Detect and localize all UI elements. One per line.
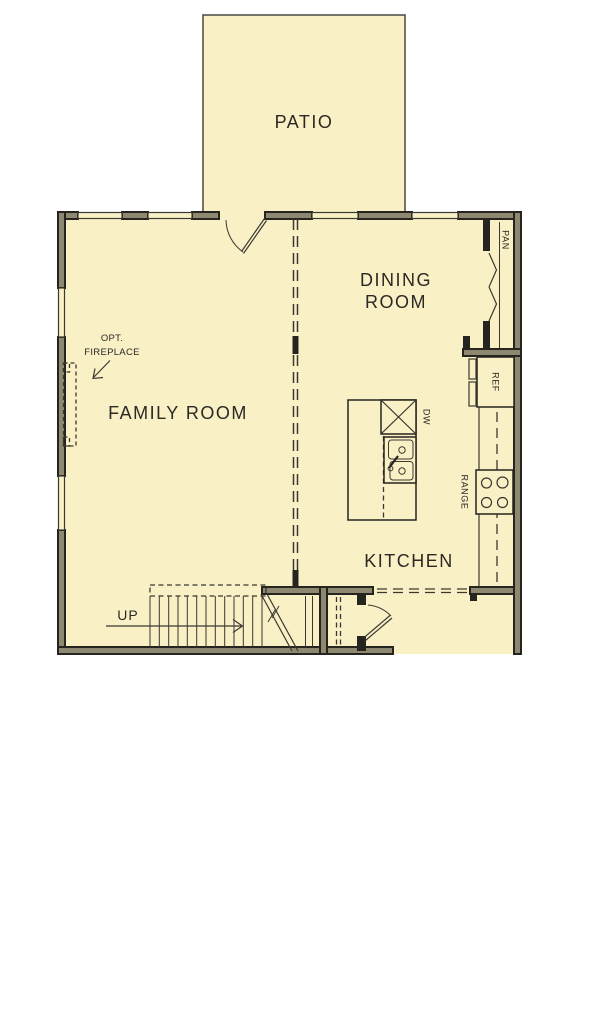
range-label: RANGE: [460, 474, 470, 509]
dishwasher-label: DW: [422, 409, 432, 425]
kitchen-sink-icon: [384, 437, 416, 483]
dining-room-label-line1: DINING: [360, 270, 432, 290]
floor-plan-drawing: PATIO: [0, 0, 600, 1024]
window-icon: [59, 476, 65, 530]
patio: PATIO: [203, 15, 405, 213]
floor-plan-page: PATIO: [0, 0, 600, 1024]
stair-wall: [320, 587, 327, 654]
kitchen-label: KITCHEN: [364, 551, 454, 571]
patio-label: PATIO: [275, 112, 334, 132]
window-icon: [59, 288, 65, 337]
fireplace-note-line2: FIREPLACE: [84, 347, 140, 358]
family-room-label: FAMILY ROOM: [108, 403, 248, 423]
refrigerator: REF: [469, 357, 514, 407]
dining-room-label-line2: ROOM: [365, 292, 427, 312]
fireplace-note-line1: OPT.: [101, 333, 123, 344]
window-icon: [412, 213, 458, 219]
refrigerator-label: REF: [491, 372, 501, 392]
window-icon: [148, 213, 192, 219]
window-icon: [312, 213, 358, 219]
pantry-label: PAN: [501, 230, 511, 250]
stairs-up-label: UP: [117, 607, 138, 623]
window-icon: [78, 213, 122, 219]
range: RANGE: [460, 470, 514, 514]
